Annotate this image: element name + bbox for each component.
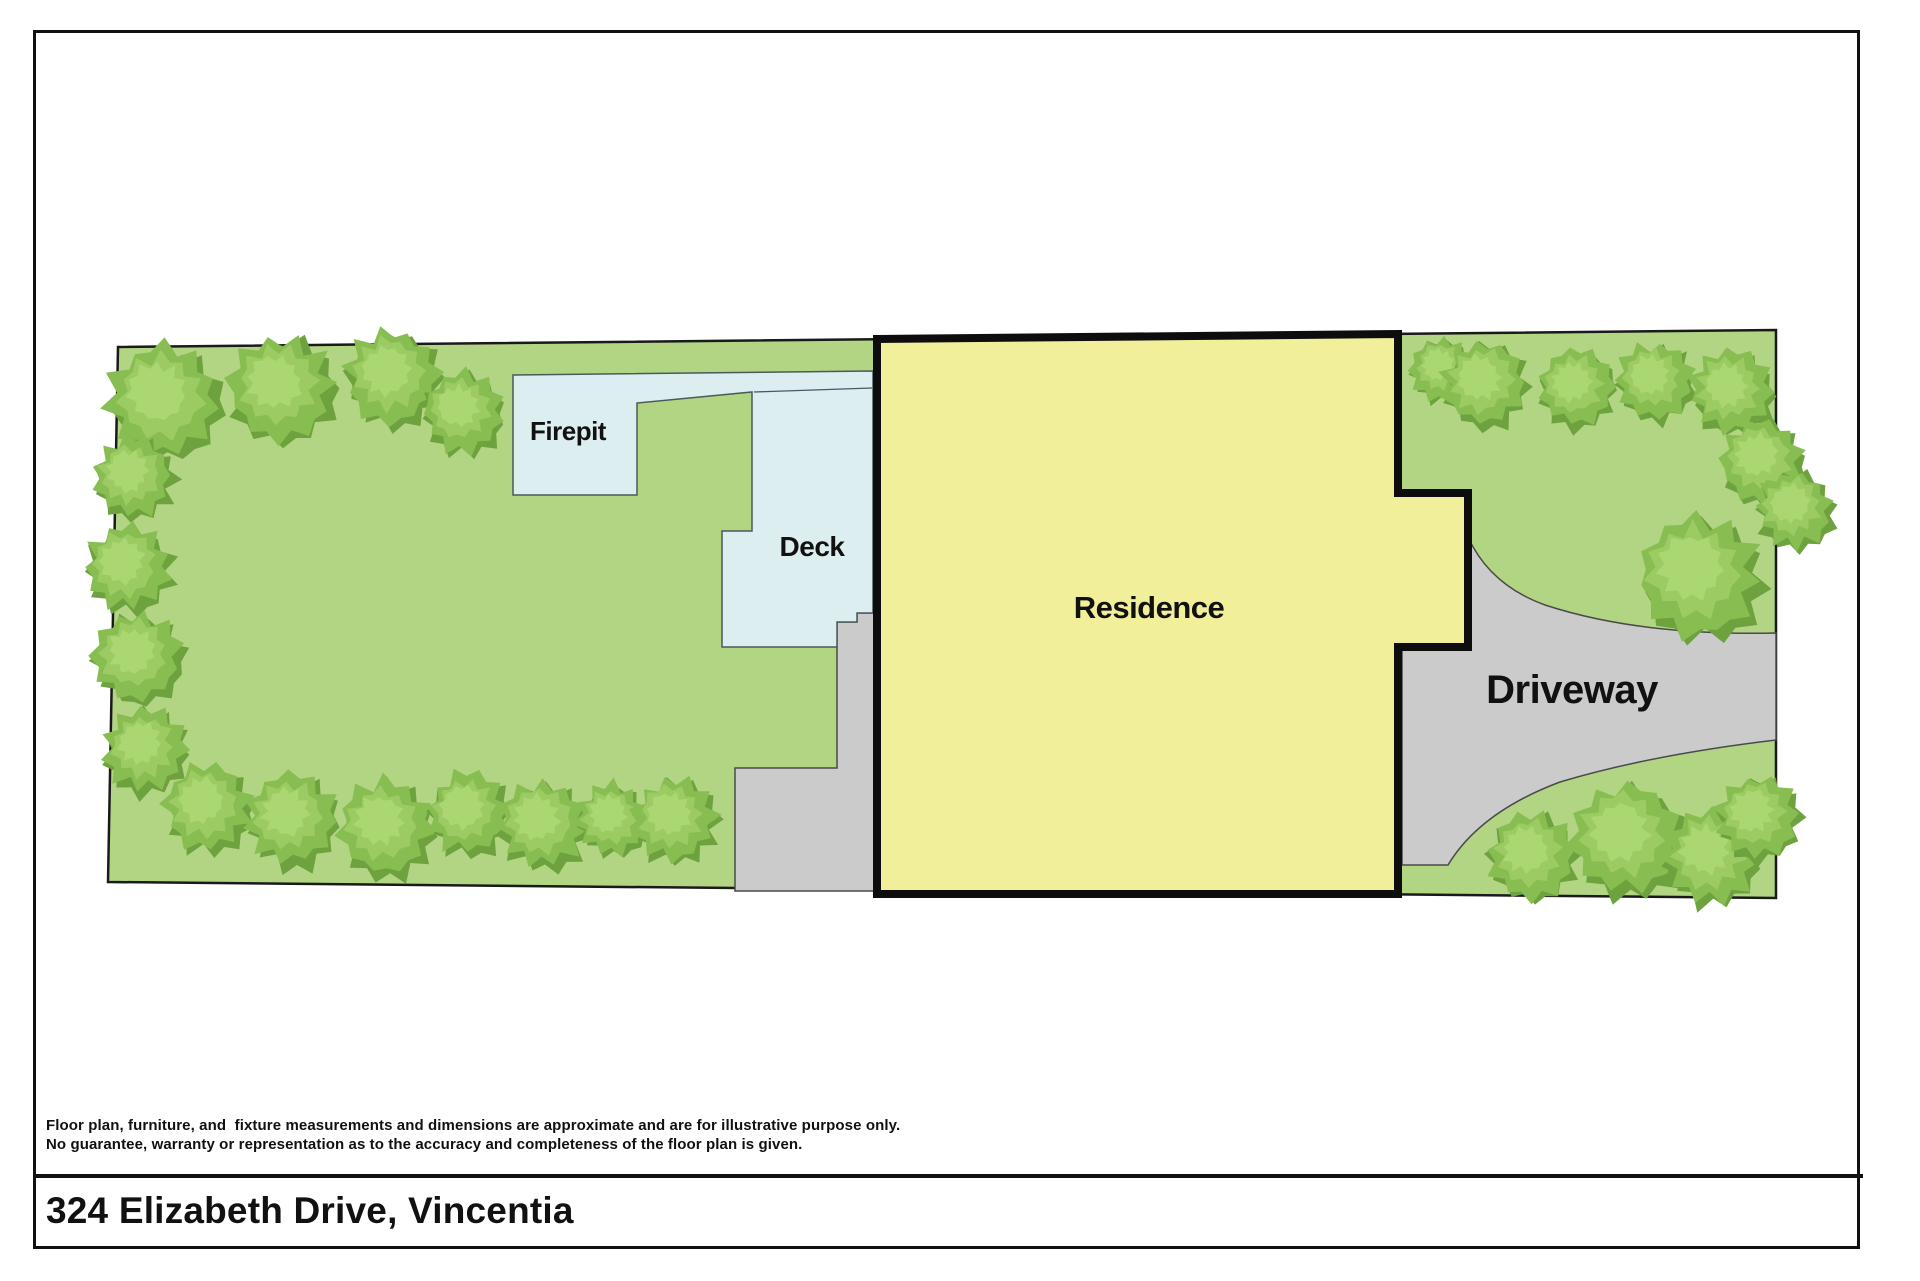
site-plan: FirepitDeckResidenceDriveway	[0, 0, 1920, 1281]
footer-divider	[33, 1174, 1863, 1178]
disclaimer-text: Floor plan, furniture, and fixture measu…	[46, 1116, 900, 1154]
disclaimer-line-1: Floor plan, furniture, and fixture measu…	[46, 1117, 900, 1134]
floor-plan-page: FirepitDeckResidenceDriveway Floor plan,…	[0, 0, 1920, 1281]
deck-label: Deck	[780, 531, 846, 562]
disclaimer-line-2: No guarantee, warranty or representation…	[46, 1136, 802, 1153]
address-title: 324 Elizabeth Drive, Vincentia	[46, 1190, 574, 1232]
residence-label: Residence	[1074, 590, 1225, 625]
driveway-label: Driveway	[1486, 668, 1659, 712]
firepit-label: Firepit	[530, 416, 607, 446]
